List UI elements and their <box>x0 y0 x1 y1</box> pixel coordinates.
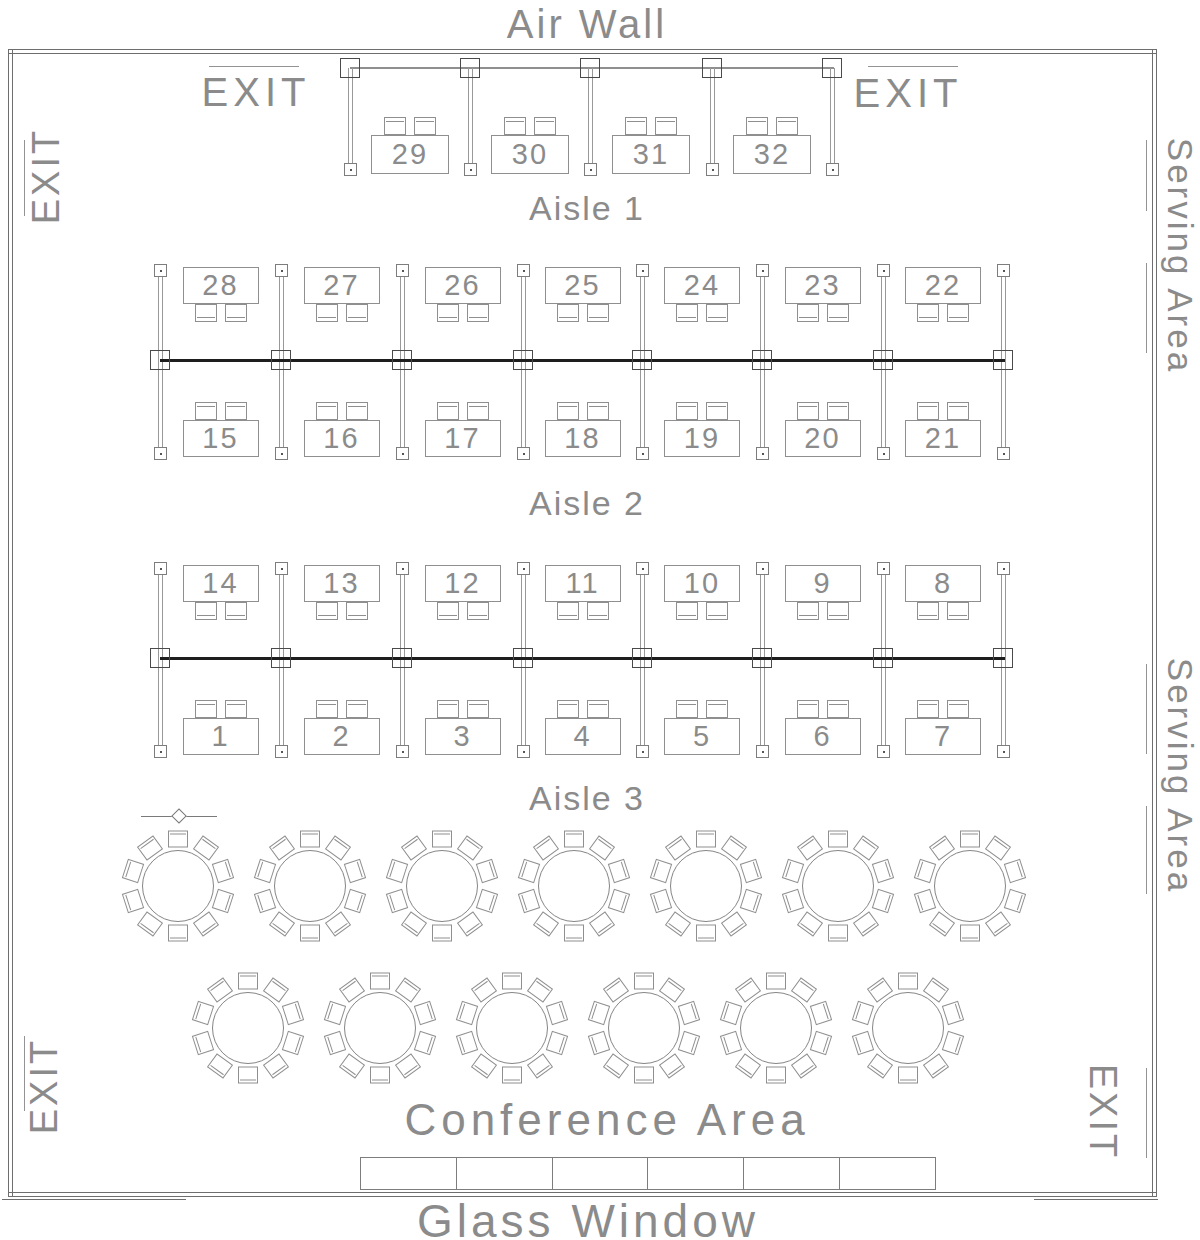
booth-chair <box>504 117 526 135</box>
round-chair <box>650 859 672 883</box>
round-chair <box>502 1067 522 1084</box>
drape-junction <box>150 648 170 668</box>
booth-chair <box>676 304 698 322</box>
round-chair <box>212 888 234 912</box>
aisle-2-label: Aisle 2 <box>529 486 645 520</box>
drape-foot <box>154 447 167 460</box>
booth-chair <box>917 602 939 620</box>
round-chair <box>432 831 452 848</box>
round-chair <box>122 859 144 883</box>
head-table-section <box>361 1158 457 1189</box>
booth-chair <box>316 700 338 718</box>
booth-chair <box>676 602 698 620</box>
round-table <box>872 992 944 1064</box>
exit-label-left-upper: EXIT <box>27 128 65 224</box>
drape-junction <box>822 58 842 78</box>
head-table <box>360 1157 936 1190</box>
booth-table: 7 <box>905 718 981 755</box>
drape-foot <box>877 745 890 758</box>
booth-table: 15 <box>183 420 259 457</box>
round-chair <box>696 831 716 848</box>
booth-table: 1 <box>183 718 259 755</box>
aisle-3-label: Aisle 3 <box>529 781 645 815</box>
round-chair <box>810 1030 832 1054</box>
door-opening-line <box>209 66 299 67</box>
round-chair <box>546 1001 568 1025</box>
round-chair <box>914 888 936 912</box>
booth-chair <box>706 402 728 420</box>
booth-table: 9 <box>785 565 861 602</box>
conference-area-label: Conference Area <box>404 1098 809 1142</box>
round-chair <box>678 1030 700 1054</box>
booth-chair <box>195 402 217 420</box>
booth-chair <box>557 700 579 718</box>
round-chair <box>502 973 522 990</box>
round-chair <box>344 888 366 912</box>
booth-table: 20 <box>785 420 861 457</box>
drape-foot <box>517 264 530 277</box>
drape-junction <box>271 350 291 370</box>
booth-table: 6 <box>785 718 861 755</box>
booth-chair <box>917 304 939 322</box>
booth-chair <box>746 117 768 135</box>
door-opening-line <box>24 140 25 216</box>
booth-chair <box>947 304 969 322</box>
drape-foot <box>275 264 288 277</box>
door-opening-line <box>1146 806 1147 894</box>
drape-foot <box>154 745 167 758</box>
booth-chair <box>827 304 849 322</box>
booth-table: 12 <box>425 565 501 602</box>
drape-junction <box>873 350 893 370</box>
round-chair <box>432 925 452 942</box>
booth-chair <box>346 602 368 620</box>
booth-chair <box>225 304 247 322</box>
round-chair <box>1004 888 1026 912</box>
round-table <box>212 992 284 1064</box>
round-chair <box>300 831 320 848</box>
wall-left <box>8 49 13 1197</box>
booth-chair <box>776 117 798 135</box>
round-chair <box>456 1030 478 1054</box>
booth-chair <box>797 402 819 420</box>
booth-chair <box>316 402 338 420</box>
drape-foot <box>517 447 530 460</box>
round-chair <box>588 1030 610 1054</box>
drape-foot <box>275 562 288 575</box>
floor-plan: Air Wall EXIT EXIT EXIT EXIT EXIT Servin… <box>0 0 1200 1240</box>
round-chair <box>370 1067 390 1084</box>
round-chair <box>608 888 630 912</box>
booth-chair <box>225 602 247 620</box>
drape-foot <box>636 562 649 575</box>
round-chair <box>898 1067 918 1084</box>
booth-chair <box>587 602 609 620</box>
booth-chair <box>797 700 819 718</box>
booth-chair <box>706 602 728 620</box>
drape-foot <box>275 745 288 758</box>
booth-chair <box>625 117 647 135</box>
booth-chair <box>797 304 819 322</box>
round-table <box>934 850 1006 922</box>
round-table <box>802 850 874 922</box>
booth-chair <box>557 402 579 420</box>
drape-junction <box>632 350 652 370</box>
wall-top <box>8 49 1157 54</box>
round-chair <box>324 1030 346 1054</box>
booth-chair <box>557 602 579 620</box>
round-chair <box>212 859 234 883</box>
round-chair <box>782 888 804 912</box>
round-chair <box>898 973 918 990</box>
booth-chair <box>467 402 489 420</box>
round-chair <box>344 859 366 883</box>
booth-chair <box>827 402 849 420</box>
round-chair <box>766 1067 786 1084</box>
drape-junction <box>513 648 533 668</box>
booth-table: 3 <box>425 718 501 755</box>
round-chair <box>254 888 276 912</box>
round-chair <box>740 859 762 883</box>
round-chair <box>386 888 408 912</box>
booth-chair <box>467 700 489 718</box>
booth-chair <box>414 117 436 135</box>
drape-foot <box>997 562 1010 575</box>
wall-bottom-cap-right <box>1034 1199 1158 1200</box>
drape-post <box>830 68 835 168</box>
round-table <box>344 992 416 1064</box>
head-table-section <box>457 1158 553 1189</box>
drape-post <box>468 68 473 168</box>
head-table-section <box>744 1158 840 1189</box>
booth-table: 18 <box>545 420 621 457</box>
round-chair <box>634 973 654 990</box>
round-chair <box>414 1001 436 1025</box>
booth-chair <box>587 700 609 718</box>
booth-chair <box>534 117 556 135</box>
booth-chair <box>346 700 368 718</box>
booth-chair <box>225 402 247 420</box>
round-chair <box>192 1030 214 1054</box>
round-chair <box>168 831 188 848</box>
round-chair <box>852 1030 874 1054</box>
round-chair <box>1004 859 1026 883</box>
booth-chair <box>195 304 217 322</box>
round-chair <box>300 925 320 942</box>
booth-table: 21 <box>905 420 981 457</box>
booth-chair <box>346 402 368 420</box>
drape-foot <box>517 745 530 758</box>
round-chair <box>192 1001 214 1025</box>
round-table <box>608 992 680 1064</box>
round-chair <box>456 1001 478 1025</box>
booth-chair <box>917 402 939 420</box>
booth-chair <box>467 602 489 620</box>
drape-foot <box>396 447 409 460</box>
round-chair <box>546 1030 568 1054</box>
booth-chair <box>676 402 698 420</box>
door-opening-line <box>868 66 958 67</box>
booth-chair <box>655 117 677 135</box>
booth-table: 27 <box>304 267 380 304</box>
round-chair <box>238 973 258 990</box>
booth-chair <box>316 304 338 322</box>
round-table <box>670 850 742 922</box>
booth-chair <box>437 700 459 718</box>
door-opening-line <box>1146 1068 1147 1158</box>
round-chair <box>650 888 672 912</box>
drape-foot <box>756 745 769 758</box>
booth-chair <box>195 602 217 620</box>
drape-foot <box>877 264 890 277</box>
booth-chair <box>827 700 849 718</box>
drape-foot <box>344 163 357 176</box>
booth-table: 28 <box>183 267 259 304</box>
round-table <box>740 992 812 1064</box>
round-chair <box>766 973 786 990</box>
round-chair <box>518 859 540 883</box>
round-chair <box>828 925 848 942</box>
drape-foot <box>636 447 649 460</box>
drape-junction <box>513 350 533 370</box>
booth-table: 25 <box>545 267 621 304</box>
round-chair <box>282 1030 304 1054</box>
booth-chair <box>676 700 698 718</box>
head-table-section <box>840 1158 935 1189</box>
round-chair <box>122 888 144 912</box>
round-chair <box>608 859 630 883</box>
round-table <box>274 850 346 922</box>
drape-foot <box>706 163 719 176</box>
booth-chair <box>195 700 217 718</box>
drape-foot <box>997 745 1010 758</box>
booth-table: 19 <box>664 420 740 457</box>
drape-junction <box>150 350 170 370</box>
round-chair <box>942 1030 964 1054</box>
drape-junction <box>340 58 360 78</box>
booth-table: 17 <box>425 420 501 457</box>
door-opening-line <box>1146 664 1147 754</box>
round-chair <box>254 859 276 883</box>
drape-foot <box>154 562 167 575</box>
utility-drop-symbol <box>171 808 187 824</box>
booth-table: 16 <box>304 420 380 457</box>
drape-post <box>348 68 353 168</box>
drape-foot <box>826 163 839 176</box>
round-table <box>476 992 548 1064</box>
booth-chair <box>797 602 819 620</box>
drape-foot <box>877 447 890 460</box>
drape-foot <box>636 264 649 277</box>
booth-chair <box>947 700 969 718</box>
aisle-1-label: Aisle 1 <box>529 191 645 225</box>
drape-junction <box>460 58 480 78</box>
drape-junction <box>632 648 652 668</box>
booth-chair <box>706 700 728 718</box>
drape-junction <box>392 648 412 668</box>
booth-table: 5 <box>664 718 740 755</box>
serving-area-label-lower: Serving Area <box>1163 658 1198 894</box>
round-chair <box>564 831 584 848</box>
drape-foot <box>584 163 597 176</box>
booth-table: 13 <box>304 565 380 602</box>
drape-post <box>588 68 593 168</box>
booth-table: 2 <box>304 718 380 755</box>
drape-foot <box>275 447 288 460</box>
drape-foot <box>396 264 409 277</box>
drape-foot <box>756 562 769 575</box>
drape-foot <box>517 562 530 575</box>
booth-table: 26 <box>425 267 501 304</box>
round-chair <box>476 859 498 883</box>
drape-junction <box>580 58 600 78</box>
round-chair <box>634 1067 654 1084</box>
booth-table: 23 <box>785 267 861 304</box>
round-chair <box>872 859 894 883</box>
exit-label-left-lower: EXIT <box>25 1038 63 1134</box>
round-chair <box>588 1001 610 1025</box>
drape-foot <box>997 264 1010 277</box>
head-table-section <box>553 1158 649 1189</box>
booth-table: 32 <box>733 135 811 174</box>
round-chair <box>324 1001 346 1025</box>
round-chair <box>782 859 804 883</box>
round-chair <box>386 859 408 883</box>
booth-chair <box>225 700 247 718</box>
booth-chair <box>437 304 459 322</box>
booth-chair <box>316 602 338 620</box>
drape-junction <box>873 648 893 668</box>
booth-table: 4 <box>545 718 621 755</box>
booth-table: 8 <box>905 565 981 602</box>
drape-foot <box>396 745 409 758</box>
door-opening-line <box>24 1036 25 1111</box>
drape-foot <box>877 562 890 575</box>
drape-foot <box>396 562 409 575</box>
door-opening-line <box>1146 140 1147 211</box>
booth-chair <box>827 602 849 620</box>
booth-chair <box>384 117 406 135</box>
drape-junction <box>271 648 291 668</box>
round-table <box>538 850 610 922</box>
booth-table: 31 <box>612 135 690 174</box>
round-chair <box>942 1001 964 1025</box>
drape-foot <box>756 264 769 277</box>
booth-table: 11 <box>545 565 621 602</box>
round-chair <box>370 973 390 990</box>
round-chair <box>720 1001 742 1025</box>
glass-window-label: Glass Window <box>417 1198 759 1240</box>
round-chair <box>810 1001 832 1025</box>
round-chair <box>476 888 498 912</box>
drape-junction <box>752 648 772 668</box>
drape-junction <box>752 350 772 370</box>
exit-label-top-left: EXIT <box>202 72 311 112</box>
round-chair <box>960 925 980 942</box>
drape-foot <box>464 163 477 176</box>
wall-bottom-cap-left <box>2 1199 186 1200</box>
head-table-section <box>648 1158 744 1189</box>
booth-table: 24 <box>664 267 740 304</box>
air-wall-label: Air Wall <box>507 4 667 44</box>
round-chair <box>414 1030 436 1054</box>
round-chair <box>852 1001 874 1025</box>
booth-chair <box>437 402 459 420</box>
booth-table: 30 <box>491 135 569 174</box>
round-chair <box>518 888 540 912</box>
booth-chair <box>467 304 489 322</box>
drape-foot <box>636 745 649 758</box>
round-chair <box>282 1001 304 1025</box>
booth-chair <box>587 402 609 420</box>
round-chair <box>564 925 584 942</box>
booth-table: 14 <box>183 565 259 602</box>
booth-chair <box>947 402 969 420</box>
round-chair <box>720 1030 742 1054</box>
round-chair <box>238 1067 258 1084</box>
booth-chair <box>947 602 969 620</box>
booth-table: 29 <box>371 135 449 174</box>
round-table <box>406 850 478 922</box>
booth-chair <box>346 304 368 322</box>
exit-label-right-lower: EXIT <box>1084 1064 1122 1160</box>
round-chair <box>914 859 936 883</box>
drape-junction <box>392 350 412 370</box>
exit-label-top-right: EXIT <box>854 73 963 113</box>
drape-junction <box>993 350 1013 370</box>
drape-post <box>710 68 715 168</box>
round-chair <box>960 831 980 848</box>
booth-chair <box>917 700 939 718</box>
round-table <box>142 850 214 922</box>
round-chair <box>168 925 188 942</box>
wall-right <box>1152 49 1157 1197</box>
round-chair <box>740 888 762 912</box>
round-chair <box>696 925 716 942</box>
round-chair <box>828 831 848 848</box>
booth-chair <box>557 304 579 322</box>
drape-foot <box>154 264 167 277</box>
drape-junction <box>702 58 722 78</box>
serving-area-label-upper: Serving Area <box>1163 138 1198 374</box>
booth-table: 22 <box>905 267 981 304</box>
drape-foot <box>756 447 769 460</box>
booth-chair <box>587 304 609 322</box>
booth-table: 10 <box>664 565 740 602</box>
door-opening-line <box>1146 263 1147 353</box>
drape-junction <box>993 648 1013 668</box>
booth-chair <box>706 304 728 322</box>
round-chair <box>678 1001 700 1025</box>
booth-chair <box>437 602 459 620</box>
drape-foot <box>997 447 1010 460</box>
round-chair <box>872 888 894 912</box>
